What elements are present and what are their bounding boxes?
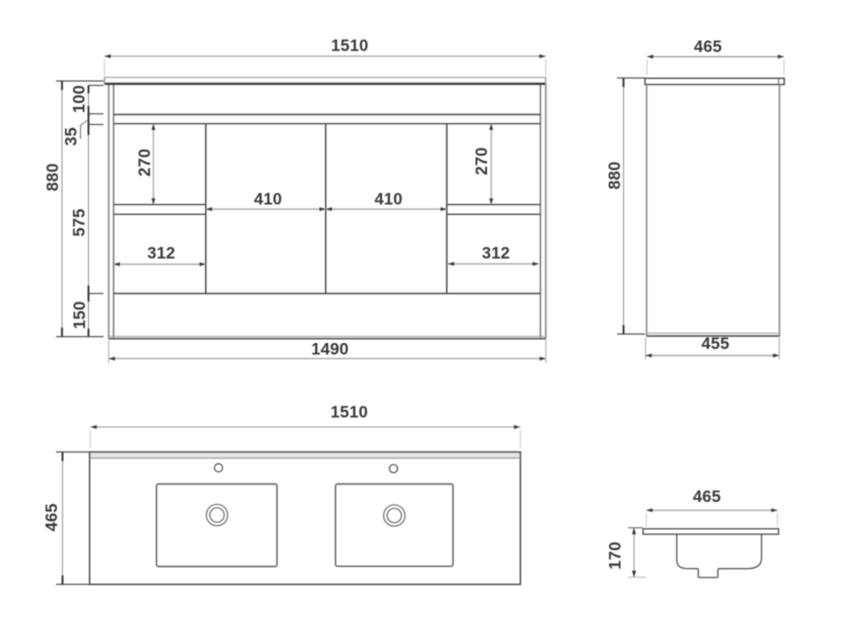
svg-text:575: 575	[70, 208, 88, 236]
svg-text:465: 465	[43, 503, 61, 531]
svg-text:410: 410	[375, 191, 403, 209]
svg-text:1510: 1510	[331, 37, 369, 55]
svg-text:410: 410	[254, 191, 282, 209]
svg-text:455: 455	[701, 335, 729, 353]
svg-text:270: 270	[473, 147, 491, 175]
svg-text:465: 465	[694, 38, 722, 56]
svg-text:465: 465	[693, 488, 721, 506]
svg-text:1490: 1490	[311, 341, 349, 359]
svg-text:100: 100	[70, 85, 88, 113]
svg-text:880: 880	[44, 163, 62, 191]
svg-text:312: 312	[482, 244, 510, 262]
svg-text:150: 150	[71, 301, 89, 329]
svg-text:880: 880	[606, 161, 624, 189]
svg-text:312: 312	[147, 245, 175, 263]
svg-text:35: 35	[63, 127, 81, 146]
svg-text:170: 170	[607, 542, 625, 570]
svg-text:270: 270	[136, 149, 154, 177]
svg-text:1510: 1510	[330, 404, 368, 422]
